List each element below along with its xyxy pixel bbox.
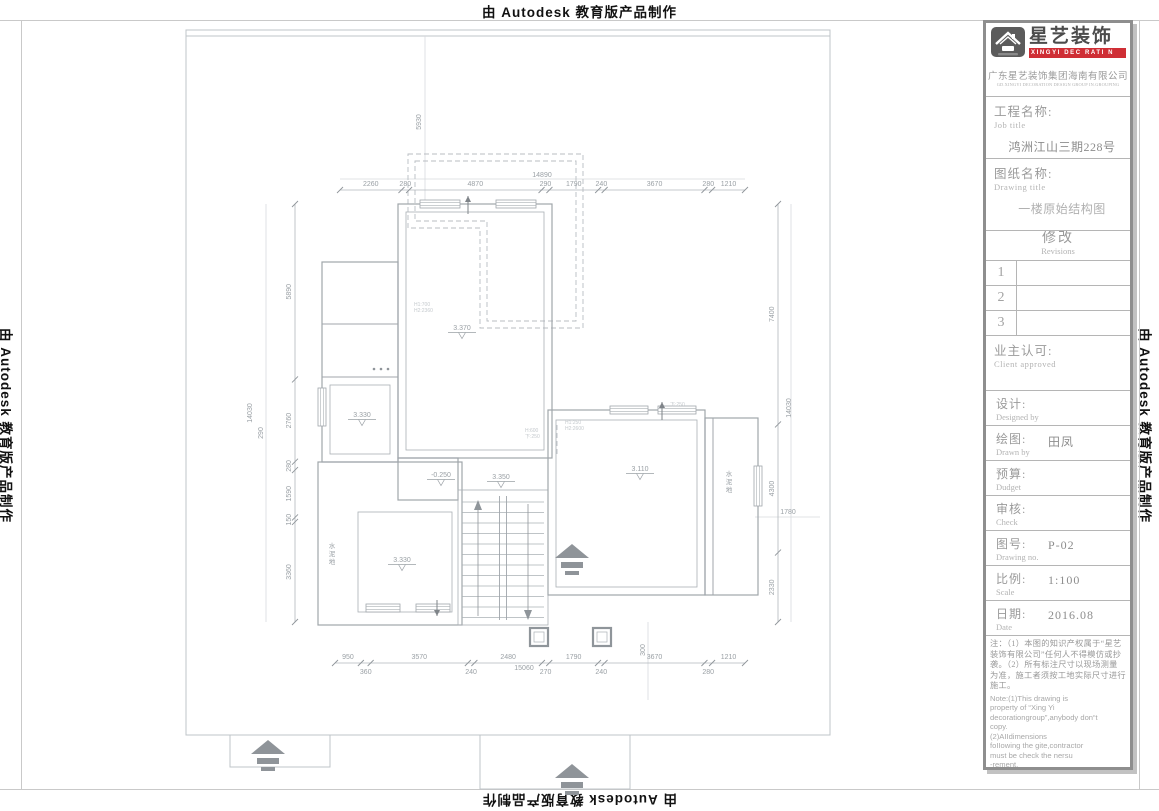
svg-text:3.370: 3.370 bbox=[453, 325, 471, 332]
drawing-no-label-en: Drawing no. bbox=[996, 552, 1130, 562]
svg-text:240: 240 bbox=[596, 181, 608, 188]
entrance-arrow-symbols bbox=[251, 544, 589, 795]
svg-text:3.330: 3.330 bbox=[353, 412, 371, 419]
extension-lines bbox=[266, 36, 820, 700]
scale-section: 比例: Scale 1:100 bbox=[986, 566, 1130, 601]
revision-number: 3 bbox=[986, 311, 1017, 335]
drafter-value: 田凤 bbox=[1048, 433, 1074, 450]
budget-label-en: Dudget bbox=[996, 482, 1130, 492]
revisions-label: 修改 bbox=[986, 231, 1130, 247]
job-title-section: 工程名称: Job title 鸿洲江山三期228号 bbox=[986, 97, 1130, 159]
drawing-sheet: 由 Autodesk 教育版产品制作 由 Autodesk 教育版产品制作 由 … bbox=[0, 0, 1159, 811]
svg-text:1790: 1790 bbox=[566, 181, 582, 188]
dimension-chain-top: 22602804870290179024036702801210 bbox=[337, 181, 748, 193]
revision-row-2: 2 bbox=[986, 286, 1130, 311]
designer-label-en: Designed by bbox=[996, 412, 1130, 422]
svg-text:H:600下:250: H:600下:250 bbox=[525, 428, 540, 440]
drafter-section: 绘图: Drawn by 田凤 bbox=[986, 426, 1130, 461]
checker-label-en: Check bbox=[996, 517, 1130, 527]
svg-text:3.330: 3.330 bbox=[393, 557, 411, 564]
svg-text:14030: 14030 bbox=[247, 403, 254, 423]
svg-text:5890: 5890 bbox=[286, 284, 293, 300]
svg-text:3.350: 3.350 bbox=[492, 474, 510, 481]
svg-text:290: 290 bbox=[258, 427, 265, 439]
job-title-value: 鸿洲江山三期228号 bbox=[994, 138, 1130, 155]
svg-text:2760: 2760 bbox=[286, 413, 293, 429]
svg-text:280: 280 bbox=[399, 181, 411, 188]
revision-number: 2 bbox=[986, 286, 1017, 310]
svg-text:2330: 2330 bbox=[769, 579, 776, 595]
client-approved-label-en: Client approved bbox=[994, 359, 1130, 369]
svg-text:4870: 4870 bbox=[468, 181, 484, 188]
svg-text:1210: 1210 bbox=[721, 654, 737, 661]
title-block: 星艺装饰 XINGYI DEC RATI N 广东星艺装饰集团海南有限公司 GD… bbox=[983, 20, 1133, 770]
revision-row-1: 1 bbox=[986, 261, 1130, 286]
revisions-label-en: Revisions bbox=[986, 247, 1130, 256]
scale-value: 1:100 bbox=[1048, 573, 1080, 588]
revisions-header: 修改 Revisions bbox=[986, 231, 1130, 261]
svg-text:H1:700H2:2360: H1:700H2:2360 bbox=[414, 302, 433, 314]
company-name-en: GD.XINGYI DECORATION DESIGN GROUP IN.GRO… bbox=[990, 82, 1127, 87]
svg-text:7400: 7400 bbox=[769, 306, 776, 322]
svg-text:3.110: 3.110 bbox=[632, 466, 649, 473]
svg-text:H1:250H2:2600: H1:250H2:2600 bbox=[565, 420, 584, 432]
scale-label-en: Scale bbox=[996, 587, 1130, 597]
job-title-label-en: Job title bbox=[994, 120, 1130, 130]
svg-text:15060: 15060 bbox=[514, 665, 534, 672]
svg-text:360: 360 bbox=[360, 669, 372, 676]
svg-text:950: 950 bbox=[342, 654, 354, 661]
title-block-logo-section: 星艺装饰 XINGYI DEC RATI N bbox=[986, 23, 1130, 67]
checker-label: 审核: bbox=[996, 500, 1130, 517]
designer-label: 设计: bbox=[996, 395, 1130, 412]
designer-section: 设计: Designed by bbox=[986, 391, 1130, 426]
svg-text:1590: 1590 bbox=[286, 486, 293, 502]
column-symbols bbox=[530, 628, 611, 646]
company-section: 广东星艺装饰集团海南有限公司 GD.XINGYI DECORATION DESI… bbox=[986, 67, 1130, 97]
svg-text:2480: 2480 bbox=[500, 654, 516, 661]
building-walls bbox=[318, 204, 758, 625]
svg-text:150: 150 bbox=[286, 514, 293, 526]
svg-text:280: 280 bbox=[702, 669, 714, 676]
staircase bbox=[462, 496, 544, 620]
drawing-title-label-en: Drawing title bbox=[994, 182, 1130, 192]
svg-text:280: 280 bbox=[702, 181, 714, 188]
budget-section: 预算: Dudget bbox=[986, 461, 1130, 496]
svg-text:280: 280 bbox=[286, 460, 293, 472]
svg-text:1210: 1210 bbox=[721, 181, 737, 188]
drawing-title-section: 图纸名称: Drawing title 一楼原始结构图 bbox=[986, 159, 1130, 231]
brand-tagline: XINGYI DEC RATI N bbox=[1029, 48, 1126, 58]
drawing-no-value: P-02 bbox=[1048, 538, 1075, 553]
revision-row-3: 3 bbox=[986, 311, 1130, 336]
job-title-label: 工程名称: bbox=[994, 101, 1130, 120]
micro-annotations: H1:700H2:2360H:600下:250H1:250H2:2600下:25… bbox=[414, 302, 685, 440]
property-boundary bbox=[186, 30, 830, 789]
checker-section: 审核: Check bbox=[986, 496, 1130, 531]
date-value: 2016.08 bbox=[1048, 608, 1094, 623]
svg-text:-0.250: -0.250 bbox=[431, 472, 451, 479]
drawing-title-label: 图纸名称: bbox=[994, 163, 1130, 182]
svg-text:240: 240 bbox=[465, 669, 477, 676]
client-approved-label: 业主认可: bbox=[994, 340, 1130, 359]
xingyi-logo-icon bbox=[990, 26, 1026, 58]
svg-text:2260: 2260 bbox=[363, 181, 379, 188]
dimension-chain-left: 5890276028015901503360 bbox=[286, 201, 298, 625]
svg-text:3670: 3670 bbox=[647, 654, 663, 661]
svg-text:1780: 1780 bbox=[780, 509, 796, 516]
notes-chinese: 注：（1）本图的知识产权属于“星艺装饰有限公司”任何人不得模仿或抄袭。（2）所有… bbox=[990, 639, 1126, 692]
svg-text:14030: 14030 bbox=[786, 398, 793, 418]
notes-english: Note:(1)This drawing is property of “Xin… bbox=[990, 694, 1126, 768]
svg-text:下:250: 下:250 bbox=[670, 402, 685, 408]
svg-text:270: 270 bbox=[540, 669, 552, 676]
date-label-en: Date bbox=[996, 622, 1130, 632]
dimension-chain-bottom: 95036035702402480270179024036702801210 bbox=[332, 654, 748, 676]
drawing-title-value: 一楼原始结构图 bbox=[994, 200, 1130, 217]
overall-dimension-labels: 1489015060140301403059303001780290 bbox=[247, 114, 796, 672]
svg-text:水泥地: 水泥地 bbox=[329, 541, 336, 566]
revision-number: 1 bbox=[986, 261, 1017, 285]
svg-text:3570: 3570 bbox=[411, 654, 427, 661]
svg-text:300: 300 bbox=[640, 644, 647, 656]
drawing-no-section: 图号: Drawing no. P-02 bbox=[986, 531, 1130, 566]
svg-text:3670: 3670 bbox=[647, 181, 663, 188]
svg-text:水泥地: 水泥地 bbox=[726, 469, 733, 494]
room-labels: 水泥地水泥地 bbox=[329, 469, 733, 566]
svg-text:290: 290 bbox=[540, 181, 552, 188]
date-section: 日期: Date 2016.08 bbox=[986, 601, 1130, 636]
svg-text:1790: 1790 bbox=[566, 654, 582, 661]
brand-name: 星艺装饰 bbox=[1029, 26, 1126, 48]
budget-label: 预算: bbox=[996, 465, 1130, 482]
svg-text:14890: 14890 bbox=[532, 172, 552, 179]
company-name-cn: 广东星艺装饰集团海南有限公司 bbox=[986, 68, 1130, 82]
svg-text:5930: 5930 bbox=[416, 114, 423, 130]
svg-text:3360: 3360 bbox=[286, 564, 293, 580]
dimension-chain-right: 740043002330 bbox=[769, 201, 781, 625]
notes-section: 注：（1）本图的知识产权属于“星艺装饰有限公司”任何人不得模仿或抄袭。（2）所有… bbox=[986, 636, 1130, 767]
client-approved-section: 业主认可: Client approved bbox=[986, 336, 1130, 391]
svg-text:240: 240 bbox=[595, 669, 607, 676]
svg-text:4300: 4300 bbox=[769, 481, 776, 497]
